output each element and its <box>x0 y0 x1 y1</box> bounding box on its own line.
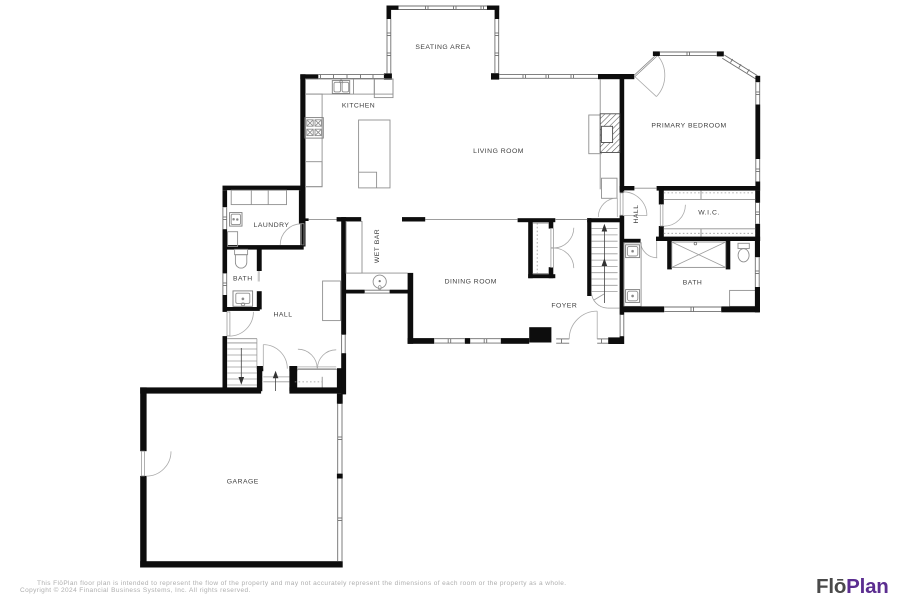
svg-text:SEATING AREA: SEATING AREA <box>415 44 470 51</box>
svg-text:DINING ROOM: DINING ROOM <box>445 279 497 286</box>
svg-text:LIVING ROOM: LIVING ROOM <box>473 148 524 155</box>
svg-text:WET BAR: WET BAR <box>374 229 381 263</box>
svg-text:BATH: BATH <box>683 280 703 287</box>
svg-text:FOYER: FOYER <box>551 303 577 310</box>
svg-text:HALL: HALL <box>633 204 640 223</box>
svg-text:BATH: BATH <box>233 276 253 283</box>
svg-text:LAUNDRY: LAUNDRY <box>254 222 290 229</box>
svg-text:HALL: HALL <box>273 312 292 319</box>
svg-text:W.I.C.: W.I.C. <box>698 210 720 217</box>
svg-text:PRIMARY BEDROOM: PRIMARY BEDROOM <box>651 123 726 130</box>
svg-text:GARAGE: GARAGE <box>227 479 259 486</box>
svg-text:KITCHEN: KITCHEN <box>342 102 375 109</box>
